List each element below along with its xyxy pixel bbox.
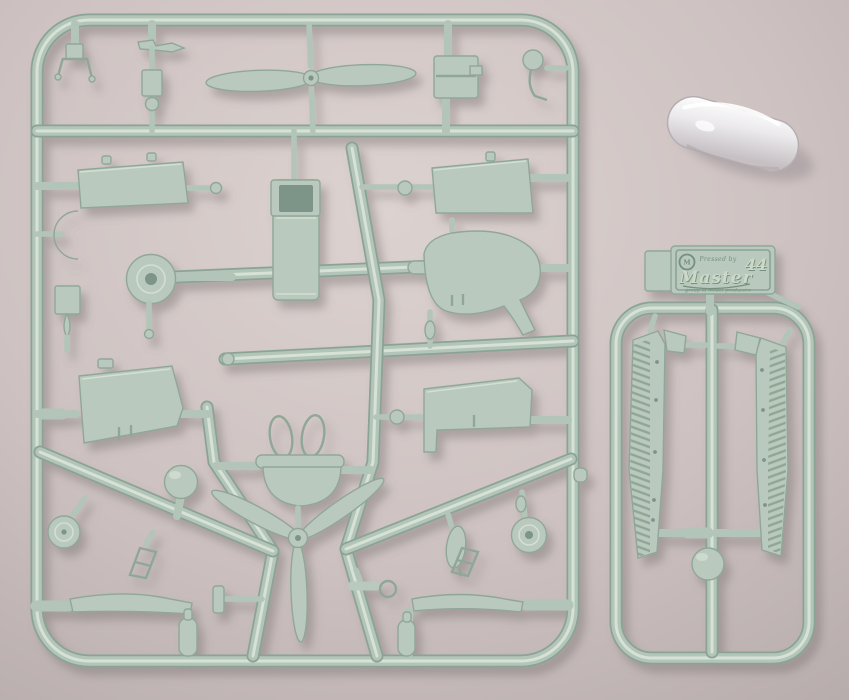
plaque-brand: Master <box>678 268 752 288</box>
gate-blob <box>222 353 234 365</box>
small-spinner-ball <box>692 548 724 580</box>
plaque-pressed-by: Pressed by <box>698 256 736 263</box>
frame-nub <box>574 468 587 482</box>
sprue-photo: M Pressed by 44 44 Master Master group o… <box>0 0 849 700</box>
plaque-tagline: group of model producers <box>685 288 751 294</box>
plaque-logo-monogram: M <box>683 259 690 267</box>
photo-stage: M Pressed by 44 44 Master Master group o… <box>0 0 849 700</box>
